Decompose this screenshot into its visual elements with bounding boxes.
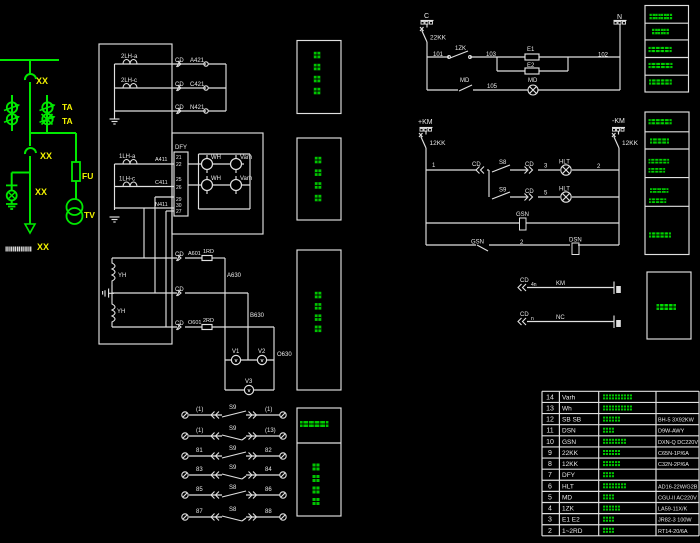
svg-text:XX: XX <box>37 242 49 252</box>
svg-text:CD: CD <box>520 312 529 318</box>
svg-text:S8: S8 <box>229 485 237 491</box>
svg-text:(1): (1) <box>196 407 203 413</box>
svg-text:GSN: GSN <box>516 212 529 218</box>
svg-text:S8: S8 <box>229 507 237 513</box>
svg-text:86: 86 <box>265 487 272 493</box>
svg-text:XX: XX <box>35 187 47 197</box>
svg-text:WH: WH <box>211 155 221 161</box>
svg-text:V2: V2 <box>258 349 266 355</box>
svg-text:12: 12 <box>546 417 554 424</box>
svg-text:5: 5 <box>548 494 552 501</box>
svg-text:12KK: 12KK <box>622 140 639 147</box>
svg-text:6: 6 <box>548 483 552 490</box>
svg-text:HLT: HLT <box>559 160 570 166</box>
svg-text:TA: TA <box>62 102 73 112</box>
svg-text:22KK: 22KK <box>430 35 447 42</box>
svg-text:TA: TA <box>62 116 73 126</box>
svg-text:S9: S9 <box>499 188 507 194</box>
svg-text:(1): (1) <box>265 407 272 413</box>
svg-text:CD: CD <box>472 162 481 168</box>
svg-text:O630: O630 <box>277 352 292 358</box>
svg-text:JR82-3 100W: JR82-3 100W <box>658 518 692 524</box>
svg-text:7: 7 <box>548 472 552 479</box>
svg-text:HLT: HLT <box>562 483 574 490</box>
svg-text:A421: A421 <box>190 58 205 64</box>
svg-text:C: C <box>424 13 429 20</box>
svg-text:RT14-20/6A: RT14-20/6A <box>658 529 688 535</box>
svg-text:3: 3 <box>548 517 552 524</box>
svg-text:SB SB: SB SB <box>562 417 581 424</box>
svg-text:NC: NC <box>556 315 565 321</box>
svg-text:2: 2 <box>548 528 552 535</box>
svg-text:XX: XX <box>36 76 48 86</box>
svg-text:+KM: +KM <box>418 119 433 126</box>
svg-text:MD: MD <box>528 78 538 84</box>
svg-text:S8: S8 <box>499 160 507 166</box>
svg-text:A411: A411 <box>155 157 167 163</box>
svg-text:A601: A601 <box>188 251 201 257</box>
svg-text:CGU-II AC220V: CGU-II AC220V <box>658 495 697 501</box>
svg-text:12KK: 12KK <box>562 461 579 468</box>
svg-text:4: 4 <box>548 506 552 513</box>
svg-text:81: 81 <box>196 448 203 454</box>
svg-text:TV: TV <box>84 210 95 220</box>
svg-text:MD: MD <box>460 78 470 84</box>
svg-text:102: 102 <box>598 53 609 59</box>
svg-text:N411: N411 <box>155 202 168 208</box>
svg-text:12KK: 12KK <box>430 140 447 147</box>
svg-text:C421: C421 <box>190 82 205 88</box>
svg-text:DXN-Q DC220V: DXN-Q DC220V <box>658 440 698 446</box>
svg-text:27: 27 <box>176 209 182 215</box>
svg-text:C65N-1P/6A: C65N-1P/6A <box>658 451 689 457</box>
svg-text:2LH-a: 2LH-a <box>121 54 138 60</box>
svg-text:BH-5 3X92KW: BH-5 3X92KW <box>658 418 695 424</box>
svg-text:MD: MD <box>562 494 572 501</box>
svg-text:103: 103 <box>486 52 497 58</box>
svg-text:1ZK: 1ZK <box>455 46 466 52</box>
svg-text:1RD: 1RD <box>203 249 214 255</box>
svg-text:WH: WH <box>211 176 221 182</box>
svg-text:Wh: Wh <box>562 405 572 412</box>
svg-text:DFY: DFY <box>562 472 576 479</box>
svg-text:S9: S9 <box>229 465 237 471</box>
svg-text:GSN: GSN <box>471 240 484 246</box>
svg-text:84: 84 <box>265 467 272 473</box>
svg-text:1ZK: 1ZK <box>562 506 575 513</box>
svg-text:LA59-11X/K: LA59-11X/K <box>658 507 688 513</box>
svg-text:11: 11 <box>546 428 553 435</box>
svg-text:21: 21 <box>176 155 182 161</box>
svg-text:HLT: HLT <box>559 187 570 193</box>
svg-text:Varh: Varh <box>562 394 576 401</box>
svg-text:1LH-a: 1LH-a <box>119 154 136 160</box>
svg-text:-KM: -KM <box>612 118 625 125</box>
svg-text:2RD: 2RD <box>203 318 214 324</box>
svg-text:1~2RD: 1~2RD <box>562 528 583 535</box>
svg-text:C411: C411 <box>155 180 168 186</box>
svg-text:E1 E2: E1 E2 <box>562 517 580 524</box>
svg-text:13: 13 <box>546 405 554 412</box>
svg-text:V3: V3 <box>245 379 253 385</box>
svg-text:B630: B630 <box>250 313 265 319</box>
svg-text:85: 85 <box>196 487 203 493</box>
svg-text:1LH-c: 1LH-c <box>119 177 135 183</box>
svg-text:A630: A630 <box>227 273 242 279</box>
svg-text:FU: FU <box>82 171 93 181</box>
svg-text:10: 10 <box>546 439 554 446</box>
svg-text:O601: O601 <box>188 320 201 326</box>
svg-text:C32N-2P/6A: C32N-2P/6A <box>658 462 689 468</box>
svg-text:N421: N421 <box>190 105 205 111</box>
svg-text:Varh: Varh <box>240 176 252 182</box>
svg-text:83: 83 <box>196 467 203 473</box>
svg-text:AD16-22W/G2B: AD16-22W/G2B <box>658 484 698 490</box>
svg-text:E2: E2 <box>527 63 535 69</box>
svg-text:25: 25 <box>176 177 182 183</box>
svg-text:S9: S9 <box>229 446 237 452</box>
svg-text:S9: S9 <box>229 426 237 432</box>
svg-text:DSN: DSN <box>562 428 576 435</box>
svg-text:Varh: Varh <box>240 155 252 161</box>
svg-text:87: 87 <box>196 509 203 515</box>
svg-text:S9: S9 <box>229 405 237 411</box>
svg-text:(1): (1) <box>196 428 203 434</box>
svg-text:8: 8 <box>548 461 552 468</box>
svg-text:YH: YH <box>117 309 125 315</box>
svg-text:82: 82 <box>265 448 272 454</box>
svg-text:(13): (13) <box>265 428 276 434</box>
svg-text:101: 101 <box>433 52 444 58</box>
svg-text:2LH-c: 2LH-c <box>121 78 137 84</box>
svg-text:105: 105 <box>487 84 498 90</box>
svg-text:22: 22 <box>176 162 182 168</box>
svg-text:DFY: DFY <box>175 145 187 151</box>
svg-text:XX: XX <box>40 151 52 161</box>
svg-text:CD: CD <box>520 278 529 284</box>
svg-text:22KK: 22KK <box>562 450 579 457</box>
svg-text:KM: KM <box>556 281 565 287</box>
svg-text:V1: V1 <box>232 349 240 355</box>
svg-text:D9W-AWY: D9W-AWY <box>658 429 685 435</box>
svg-text:9: 9 <box>548 450 552 457</box>
svg-text:GSN: GSN <box>562 439 576 446</box>
svg-text:E1: E1 <box>527 47 535 53</box>
svg-text:26: 26 <box>176 185 182 191</box>
svg-text:14: 14 <box>546 394 554 401</box>
svg-text:88: 88 <box>265 509 272 515</box>
svg-text:YH: YH <box>118 273 126 279</box>
